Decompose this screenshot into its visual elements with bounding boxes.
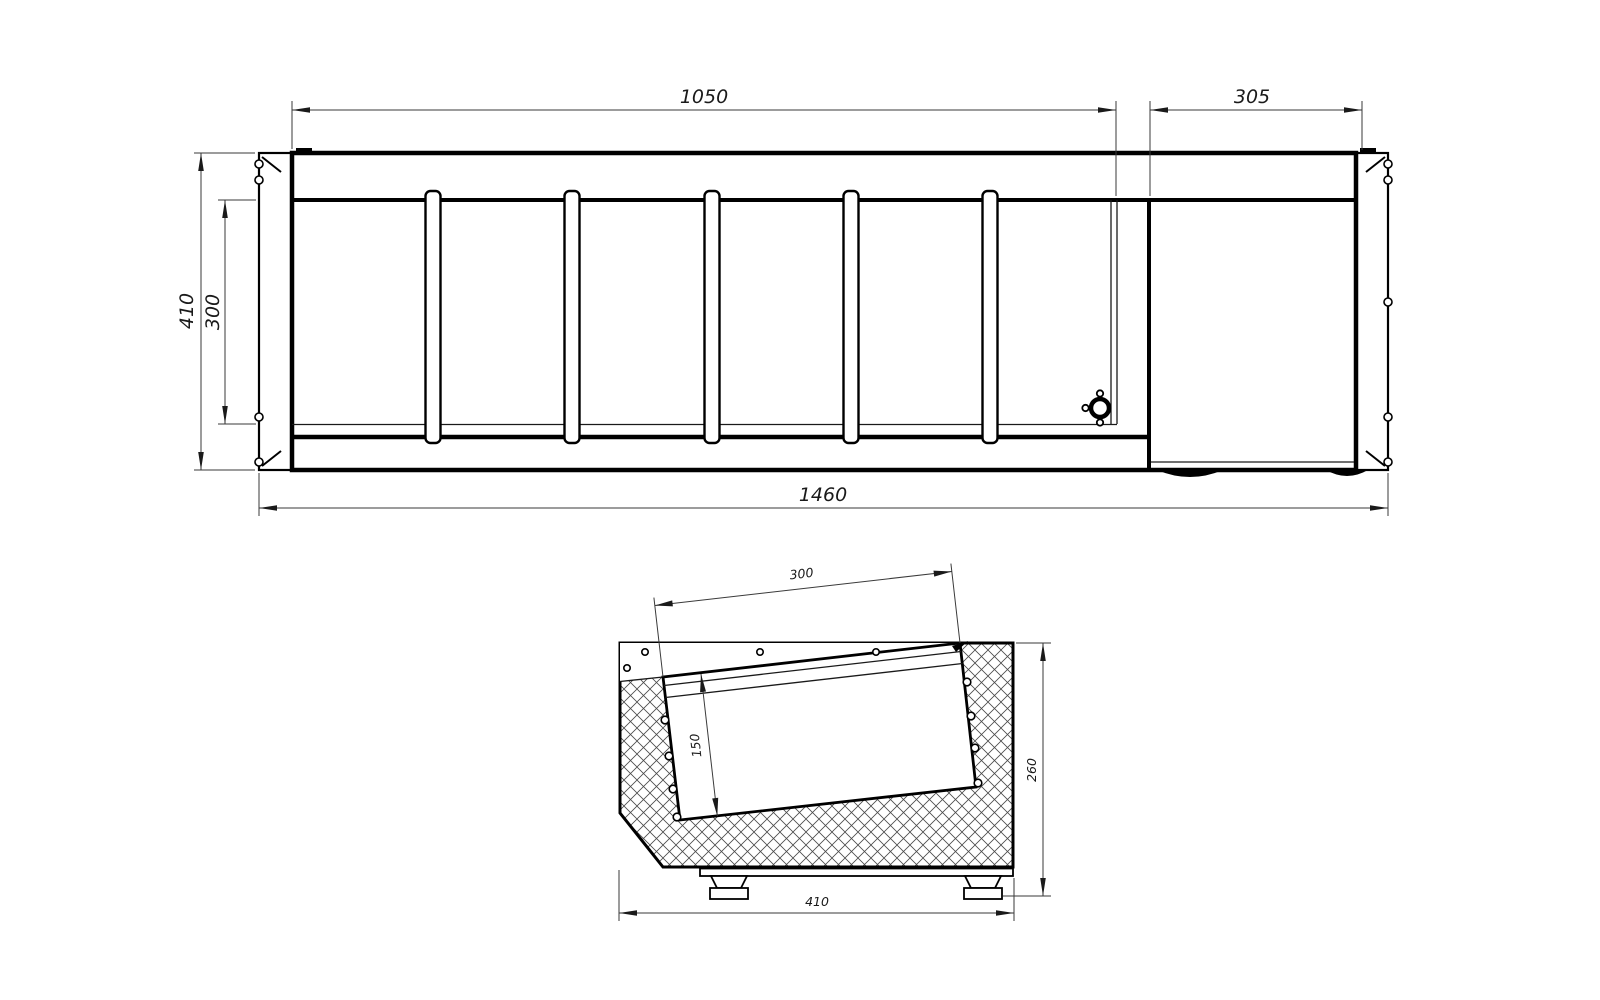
foot-stem	[965, 876, 1001, 888]
divider-bar	[983, 191, 998, 443]
divider-bar	[844, 191, 859, 443]
dim-width-main-text: 1050	[680, 86, 728, 108]
corner-tab	[296, 148, 312, 153]
foot-shadow	[1326, 470, 1368, 476]
flange-hole	[873, 649, 879, 655]
dim-width-right-text: 305	[1234, 86, 1270, 108]
cap-bump	[1384, 176, 1392, 184]
top-view: 1050 305 410 300	[176, 86, 1392, 516]
wall-bump	[963, 678, 971, 686]
cap-bump	[255, 458, 263, 466]
cap-bump	[255, 413, 263, 421]
wall-bump	[967, 712, 975, 720]
wall-bump	[971, 744, 979, 752]
wall-bump	[669, 785, 677, 793]
base-and-feet	[700, 869, 1013, 900]
divider-bar	[705, 191, 720, 443]
cap-bump	[1384, 298, 1392, 306]
wall-bump	[974, 779, 982, 787]
left-end-cap	[255, 153, 292, 470]
foot-base	[964, 888, 1002, 899]
wall-bump	[665, 752, 673, 760]
flange-hole	[642, 649, 648, 655]
cap-bump	[255, 160, 263, 168]
dim-width-overall-text: 1460	[799, 484, 847, 506]
fitting-bolt-hole	[1097, 419, 1103, 425]
fitting-bolt-hole	[1097, 390, 1103, 396]
drawing-sheet: 1050 305 410 300	[0, 0, 1600, 1000]
flange-hole	[757, 649, 763, 655]
flange-hole	[624, 665, 630, 671]
foot-shadow	[1157, 470, 1223, 477]
divider-bar	[565, 191, 580, 443]
base-plate	[700, 869, 1013, 877]
dim-tub-depth-text: 150	[687, 733, 705, 758]
dim-side-depth-text: 410	[805, 894, 829, 909]
dim-width-overall: 1460	[259, 473, 1388, 516]
side-view: 300 150 260 410	[619, 564, 1051, 921]
dim-side-height-text: 260	[1024, 758, 1039, 782]
cap-bump	[255, 176, 263, 184]
fitting-bolt-hole	[1082, 405, 1088, 411]
technical-drawing: 1050 305 410 300	[0, 0, 1600, 1000]
cap-bump	[1384, 413, 1392, 421]
foot-stem	[711, 876, 747, 888]
dim-height-inner-text: 300	[202, 294, 224, 330]
dim-height-inner: 300	[202, 200, 256, 424]
wall-bump	[661, 716, 669, 724]
dim-height-overall-text: 410	[176, 293, 198, 329]
dim-side-depth: 410	[619, 870, 1014, 921]
cap-bump	[1384, 160, 1392, 168]
wall-bump	[673, 813, 681, 821]
divider-bar	[426, 191, 441, 443]
dim-rim-width-text: 300	[789, 565, 814, 583]
right-end-cap	[1356, 153, 1392, 470]
foot-base	[710, 888, 748, 899]
cap-bump	[1384, 458, 1392, 466]
